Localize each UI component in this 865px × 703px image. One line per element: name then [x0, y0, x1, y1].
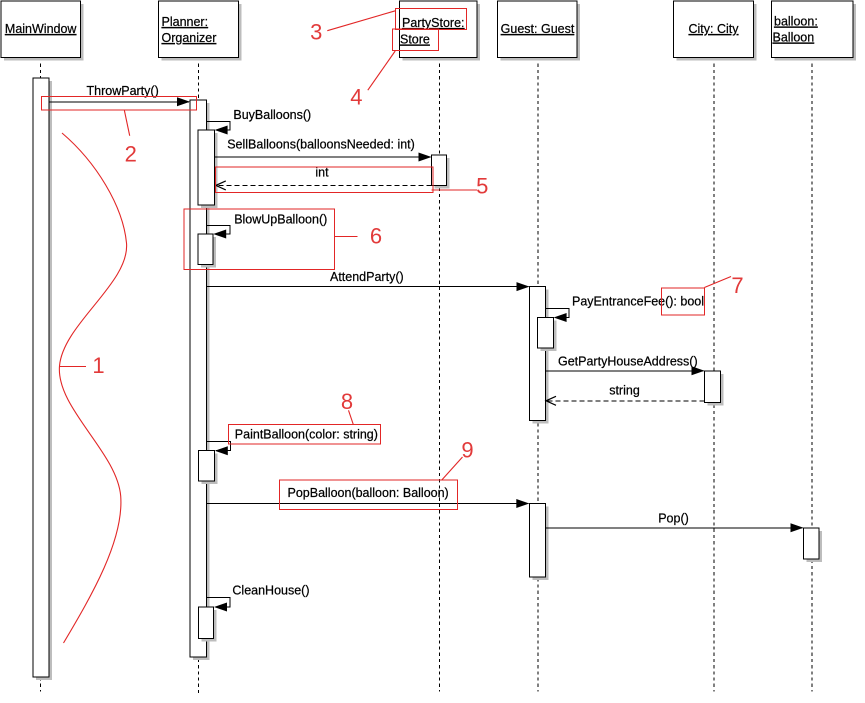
svg-text:1: 1 [92, 353, 104, 378]
svg-text:PaintBalloon(color: string): PaintBalloon(color: string) [235, 428, 378, 442]
svg-text:Balloon: Balloon [773, 31, 815, 45]
svg-text:PartyStore:: PartyStore: [402, 16, 465, 30]
svg-text:Organizer: Organizer [162, 31, 217, 45]
svg-text:BlowUpBalloon(): BlowUpBalloon() [234, 213, 327, 227]
svg-text:GetPartyHouseAddress(): GetPartyHouseAddress() [558, 355, 698, 369]
svg-text:string: string [609, 384, 640, 398]
svg-text:5: 5 [476, 174, 488, 199]
svg-text:int: int [315, 166, 329, 180]
svg-text:balloon:: balloon: [774, 15, 818, 29]
svg-text:7: 7 [731, 273, 743, 298]
svg-text:6: 6 [370, 224, 382, 249]
svg-text:8: 8 [341, 389, 353, 414]
svg-text:AttendParty(): AttendParty() [330, 270, 404, 284]
svg-text:Guest: Guest: Guest: Guest [501, 22, 575, 36]
svg-text:9: 9 [461, 438, 473, 463]
svg-text:ThrowParty(): ThrowParty() [87, 84, 159, 98]
svg-text:PopBalloon(balloon: Balloon): PopBalloon(balloon: Balloon) [288, 486, 449, 500]
svg-text:BuyBalloons(): BuyBalloons() [233, 108, 311, 122]
svg-text:City: City: City: City [689, 22, 740, 36]
svg-text:Store: Store [400, 33, 430, 47]
svg-text:2: 2 [125, 141, 137, 166]
svg-text:4: 4 [350, 85, 362, 110]
svg-text:Planner:: Planner: [162, 15, 209, 29]
svg-text:Pop(): Pop() [658, 512, 689, 526]
svg-text:CleanHouse(): CleanHouse() [232, 584, 309, 598]
svg-text:SellBalloons(balloonsNeeded: i: SellBalloons(balloonsNeeded: int) [227, 138, 415, 152]
svg-text:3: 3 [310, 19, 322, 44]
svg-text:MainWindow: MainWindow [5, 22, 78, 36]
svg-text:PayEntranceFee(): bool: PayEntranceFee(): bool [572, 295, 704, 309]
